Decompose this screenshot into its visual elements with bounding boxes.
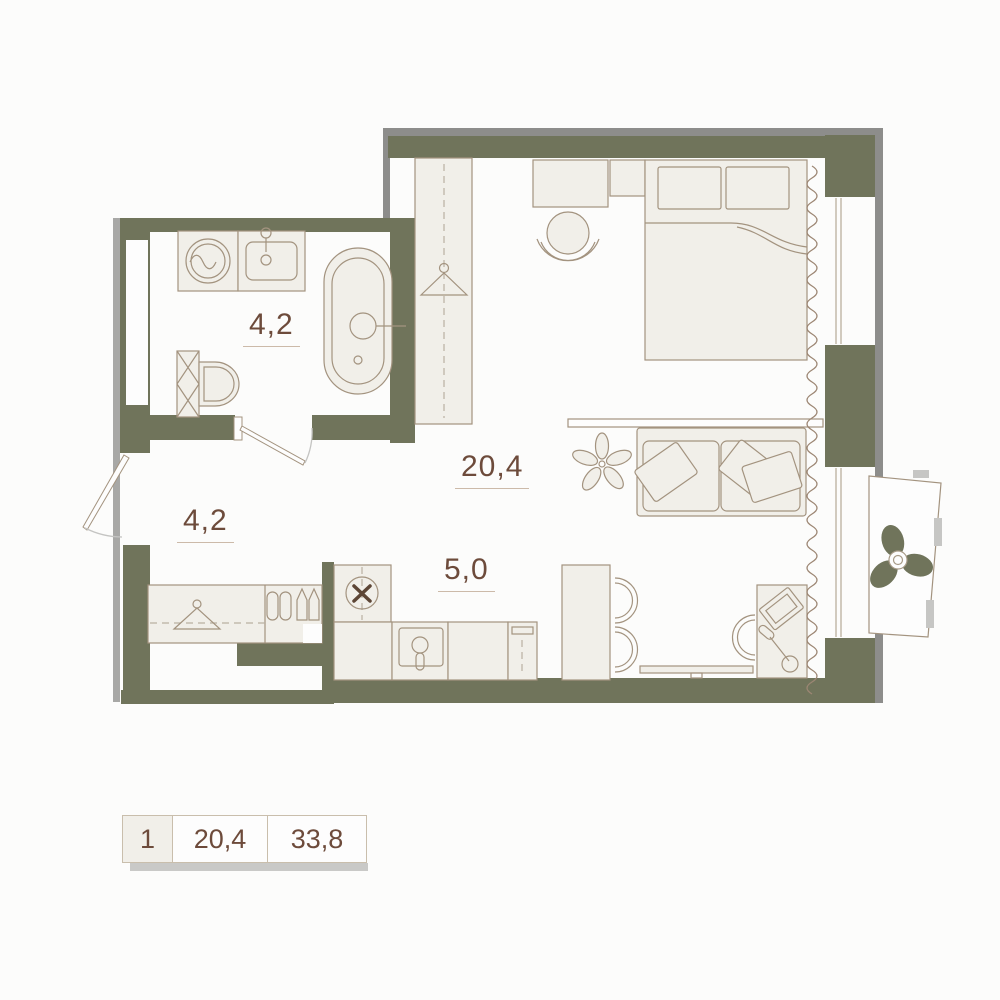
- room-label-bathroom: 4,2: [243, 308, 300, 347]
- wall-step: [237, 643, 334, 666]
- pillow: [658, 167, 721, 209]
- pillow: [726, 167, 789, 209]
- legend-shadow: [130, 863, 368, 871]
- wall-bathroom-right: [390, 218, 415, 443]
- wall-top: [388, 136, 875, 158]
- room-label-kitchen: 5,0: [438, 553, 495, 592]
- wall-shaft: [126, 240, 148, 405]
- wall-right-middle: [825, 345, 875, 467]
- wardrobe: [415, 158, 472, 424]
- balcony-shadow-top: [913, 470, 929, 478]
- wall-left-lower: [123, 545, 150, 690]
- wall-bathroom-top: [120, 218, 415, 232]
- room-label-hallway: 4,2: [177, 504, 234, 543]
- balcony-shadow-bottom: [926, 600, 934, 628]
- work-desk: [733, 585, 807, 678]
- kitchen-sink: [392, 622, 448, 680]
- dining-table: [562, 565, 610, 680]
- tv: [640, 666, 753, 678]
- bathroom-sink: [238, 228, 305, 291]
- shadow-top-edge: [383, 128, 883, 136]
- wall-right-upper: [825, 135, 875, 197]
- wall-bottom-left: [121, 690, 334, 704]
- wall-bottom: [322, 678, 875, 703]
- kitchen-counter: [448, 622, 508, 680]
- entrance-door: [83, 455, 129, 537]
- nightstand: [610, 160, 645, 196]
- room-label-living-room: 20,4: [455, 450, 529, 489]
- kitchen-cabinet: [334, 622, 392, 680]
- kitchen-stove: [334, 565, 391, 622]
- bed: [645, 160, 807, 360]
- dining-chairs: [615, 578, 638, 672]
- window-bottom-right: [836, 468, 841, 637]
- desk-chair: [537, 212, 599, 261]
- wall-bathroom-bottom-left: [150, 415, 235, 440]
- legend-rooms-count: 1: [122, 815, 173, 863]
- washing-machine: [178, 231, 238, 291]
- oven: [508, 622, 537, 680]
- curtain: [807, 166, 817, 694]
- floor-plan: 4,2 4,2 20,4 5,0 1 20,4 33,8: [0, 0, 1000, 1000]
- toilet: [177, 351, 239, 417]
- window-top-right: [836, 198, 841, 344]
- legend-total-area: 33,8: [267, 815, 367, 863]
- legend: 1 20,4 33,8: [122, 815, 367, 863]
- bathroom-door: [234, 417, 312, 465]
- shadow-left-edge: [113, 218, 120, 702]
- legend-living-area: 20,4: [172, 815, 269, 863]
- plant: [571, 433, 634, 493]
- hallway-closet: [148, 585, 322, 643]
- desk: [533, 160, 608, 207]
- sofa: [634, 428, 806, 516]
- shelf: [568, 419, 823, 427]
- wall-bathroom-bottom-right: [312, 415, 415, 440]
- balcony-shadow-right: [934, 518, 942, 546]
